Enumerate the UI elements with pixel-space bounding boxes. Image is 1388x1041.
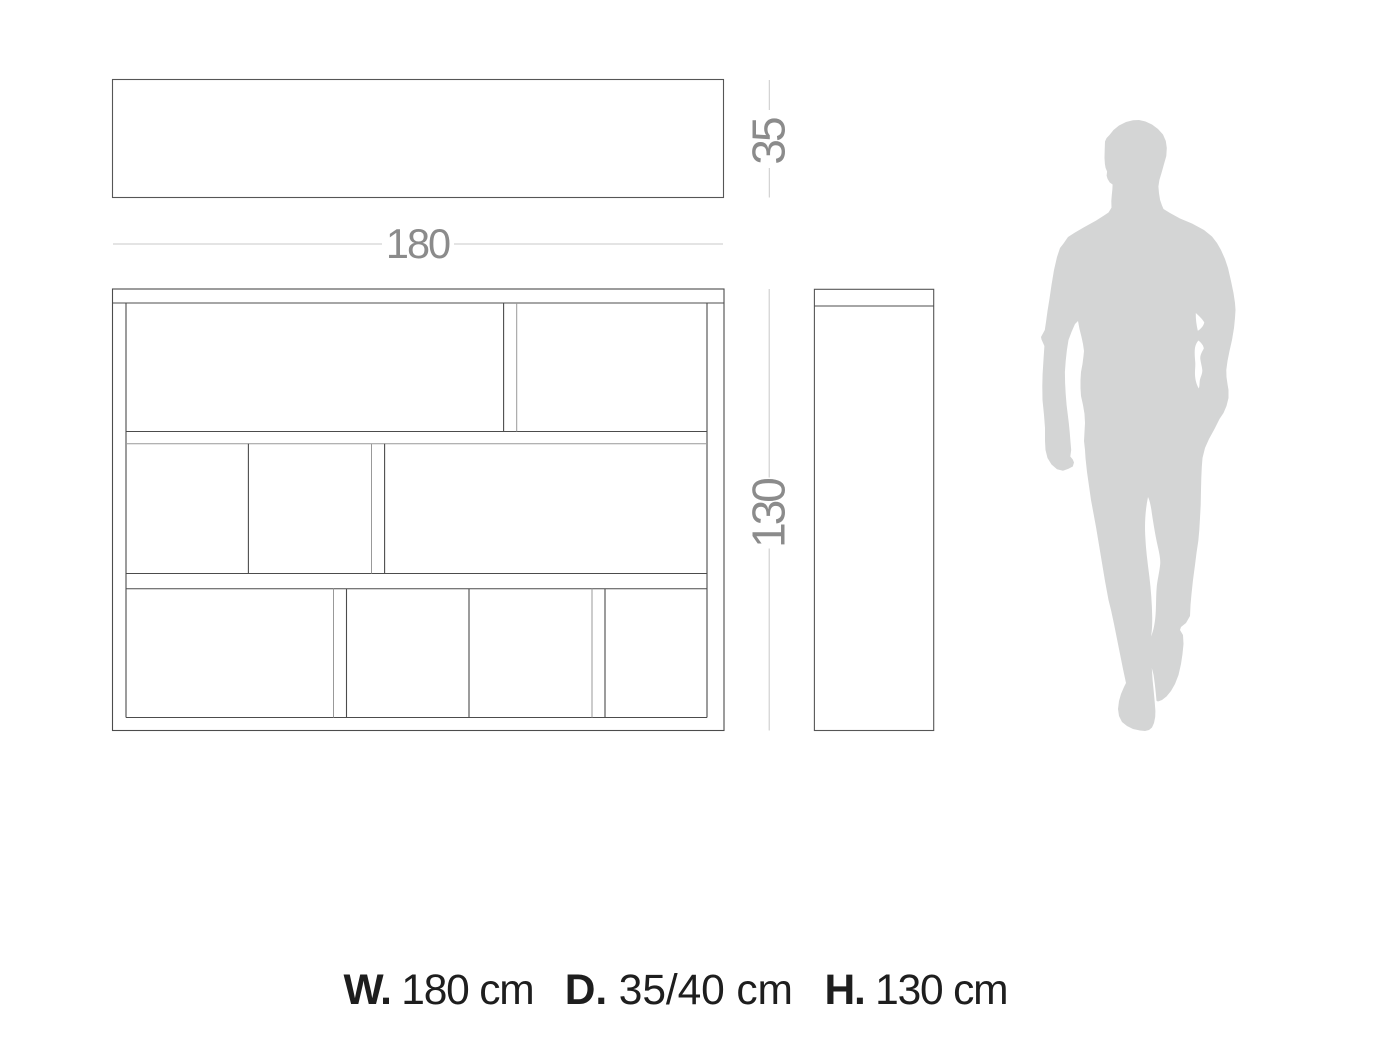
svg-text:W. 180 cm: W. 180 cm: [344, 967, 534, 1014]
svg-text:H. 130 cm: H. 130 cm: [824, 967, 1007, 1014]
svg-text:D. 35/40 cm: D. 35/40 cm: [565, 967, 793, 1014]
svg-text:180: 180: [386, 220, 450, 267]
svg-text:35: 35: [743, 118, 795, 165]
svg-text:130: 130: [743, 479, 795, 548]
